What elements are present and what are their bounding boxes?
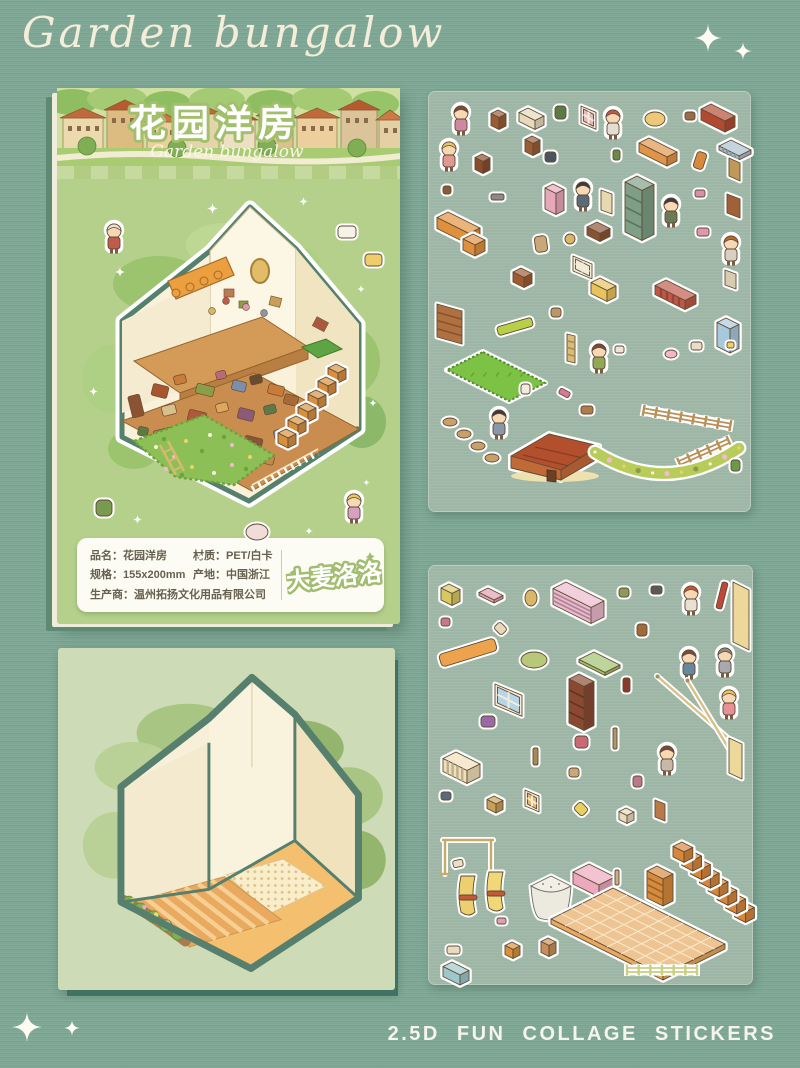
page-title: Garden bungalow bbox=[22, 8, 445, 57]
footer-tagline: 2.5D FUN COLLAGE STICKERS bbox=[388, 1023, 776, 1046]
clock-sticker bbox=[560, 229, 580, 249]
sticker-sheet-1 bbox=[428, 91, 751, 512]
wood-panel-sticker bbox=[724, 733, 747, 784]
frame-sticker bbox=[564, 763, 584, 782]
teddy-bear-sticker bbox=[628, 771, 647, 792]
chair-sticker bbox=[536, 933, 561, 962]
yellow-sheep-sticker bbox=[360, 249, 387, 271]
round-table-sticker bbox=[582, 217, 615, 247]
satchel-sticker bbox=[614, 583, 634, 602]
chair-sticker bbox=[486, 105, 511, 135]
brand-logo-text: 大麦洛洛 bbox=[285, 559, 384, 596]
toy-sticker bbox=[436, 787, 456, 805]
sparkle-icon bbox=[369, 399, 377, 407]
sparkle-icon bbox=[299, 197, 308, 206]
sparkle-icon bbox=[357, 285, 365, 293]
sparkle-icon bbox=[133, 515, 142, 524]
yellow-cabinet-sticker bbox=[436, 579, 465, 611]
sparkle-icon bbox=[89, 387, 98, 396]
awning-sticker bbox=[432, 632, 504, 674]
product-package-card: 花园洋房 Garden bungalow 品名：花园洋房材质：PET/白卡 规格… bbox=[57, 88, 400, 624]
product-specs: 品名：花园洋房材质：PET/白卡 规格：155x200mm产地：中国浙江 生产商… bbox=[90, 547, 286, 605]
shepherd-sticker bbox=[586, 339, 612, 375]
mushroom-sticker bbox=[438, 181, 456, 199]
boy-sticker bbox=[678, 581, 704, 617]
room-backdrop-card bbox=[58, 648, 395, 990]
corner-counter-sticker bbox=[438, 747, 485, 789]
coin-sticker bbox=[520, 585, 542, 611]
counter-corner-sticker bbox=[458, 229, 490, 261]
arch-cabinet-sticker bbox=[722, 189, 745, 223]
girl-sticker bbox=[341, 489, 367, 525]
poster: Garden bungalow 花园洋房 Garden bungalow 品名：… bbox=[0, 0, 800, 1068]
chick-sticker bbox=[722, 337, 739, 353]
chair-sticker bbox=[470, 149, 495, 179]
small-fence-sticker bbox=[620, 957, 704, 983]
villager-sticker bbox=[658, 193, 684, 229]
brand-logo: 大麦洛洛 bbox=[284, 545, 385, 605]
bead-chain-sticker bbox=[528, 743, 543, 770]
sparkle-icon bbox=[734, 42, 752, 60]
sheep-sticker bbox=[686, 337, 707, 355]
pole-sticker bbox=[608, 723, 622, 754]
toy-car-sticker bbox=[692, 223, 714, 241]
striped-crate-sticker bbox=[650, 275, 701, 315]
orange-bench-sticker bbox=[634, 133, 682, 171]
package-title-cn: 花园洋房 bbox=[129, 103, 301, 144]
bag-sticker bbox=[546, 303, 566, 322]
product-info-label: 品名：花园洋房材质：PET/白卡 规格：155x200mm产地：中国浙江 生产商… bbox=[77, 538, 384, 612]
spec-name: 品名：花园洋房 bbox=[90, 547, 193, 566]
basket-sticker bbox=[576, 401, 598, 419]
flower-basket-sticker bbox=[570, 731, 593, 753]
package-title: 花园洋房 Garden bungalow bbox=[57, 88, 400, 166]
pig-sticker bbox=[241, 519, 273, 545]
nightstand-sticker bbox=[482, 791, 508, 818]
toy-sticker bbox=[436, 613, 455, 631]
stool-sticker bbox=[500, 937, 525, 964]
bottle-sticker bbox=[618, 673, 635, 697]
flowers-sticker bbox=[476, 711, 500, 732]
oval-rug-sticker bbox=[516, 647, 552, 673]
teddy-bear-sticker bbox=[632, 619, 652, 641]
girl-sticker bbox=[716, 685, 742, 721]
flower-hedge-sticker bbox=[586, 441, 748, 493]
granny-sticker bbox=[101, 219, 127, 255]
sheep-outline-sticker bbox=[333, 221, 361, 243]
sparkle-icon bbox=[64, 1020, 80, 1036]
sparkle-icon bbox=[363, 479, 370, 486]
goose-sticker bbox=[516, 379, 535, 399]
pink-fridge-sticker bbox=[540, 179, 569, 220]
sparkle-icon bbox=[115, 267, 125, 277]
villager-sticker bbox=[718, 231, 744, 267]
yellow-desk-sticker bbox=[586, 273, 621, 307]
villager-sticker bbox=[600, 105, 626, 141]
curtain-window-sticker bbox=[520, 785, 544, 817]
pink-sideboard-sticker bbox=[548, 577, 609, 629]
ladder-sticker bbox=[562, 329, 580, 368]
stripe-band bbox=[57, 166, 400, 179]
sparkle-icon bbox=[305, 527, 313, 535]
villager-sticker bbox=[654, 741, 680, 777]
spec-origin: 产地：中国浙江 bbox=[193, 566, 270, 585]
cubby-shelf-sticker bbox=[432, 299, 467, 349]
girl-sticker bbox=[436, 137, 462, 173]
potted-plant-sticker bbox=[91, 495, 117, 521]
mirror-sticker bbox=[720, 265, 741, 294]
villager-sticker bbox=[448, 101, 474, 137]
sticker-sheet-2 bbox=[428, 565, 753, 985]
tall-shelf-sticker bbox=[564, 669, 599, 736]
villager-sticker bbox=[570, 177, 596, 213]
toy-sticker bbox=[690, 185, 710, 202]
green-wardrobe-sticker bbox=[620, 171, 659, 246]
wall-shelf-sticker bbox=[724, 153, 745, 186]
red-sofa-sticker bbox=[696, 99, 740, 137]
kettle-sticker bbox=[540, 147, 561, 167]
stone-sticker bbox=[480, 449, 504, 467]
package-header: 花园洋房 Garden bungalow bbox=[57, 88, 400, 166]
cabinet-sticker bbox=[508, 263, 537, 293]
room-illustration bbox=[60, 650, 393, 988]
slide-sticker bbox=[686, 145, 713, 177]
pig-sticker bbox=[660, 345, 682, 363]
package-body: 品名：花园洋房材质：PET/白卡 规格：155x200mm产地：中国浙江 生产商… bbox=[57, 179, 400, 624]
sparkle-icon bbox=[207, 203, 218, 214]
scissors-sticker bbox=[551, 381, 577, 405]
pink-cabinet-sticker bbox=[576, 101, 601, 134]
sparkle-icon bbox=[694, 24, 722, 52]
spec-size: 规格：155x200mm bbox=[90, 566, 193, 585]
sprig-sticker bbox=[608, 145, 625, 165]
log-sticker bbox=[490, 311, 539, 342]
kite-sticker bbox=[566, 794, 596, 824]
lamb-sticker bbox=[610, 341, 629, 358]
glasses-sticker bbox=[486, 189, 509, 205]
crate-sticker bbox=[614, 803, 639, 829]
package-title-en: Garden bungalow bbox=[150, 142, 304, 162]
small-rug-sticker bbox=[492, 913, 511, 929]
label-divider bbox=[281, 550, 282, 600]
plant-sticker bbox=[550, 101, 571, 124]
loveseat-sticker bbox=[514, 103, 549, 135]
sparkle-icon bbox=[197, 553, 205, 561]
plant-sticker bbox=[726, 455, 745, 476]
curtain-sticker bbox=[478, 865, 514, 919]
coat-sticker bbox=[528, 230, 553, 259]
pink-rug-sticker bbox=[474, 583, 508, 608]
spec-manufacturer: 生产商：温州拓扬文化用品有限公司 bbox=[90, 586, 266, 605]
tricycle-sticker bbox=[646, 581, 667, 599]
mini-door-sticker bbox=[650, 795, 670, 826]
blue-bench-sticker bbox=[438, 957, 474, 990]
door-sticker bbox=[596, 185, 617, 219]
bun-sticker bbox=[640, 107, 670, 131]
sparkle-icon bbox=[12, 1012, 42, 1042]
